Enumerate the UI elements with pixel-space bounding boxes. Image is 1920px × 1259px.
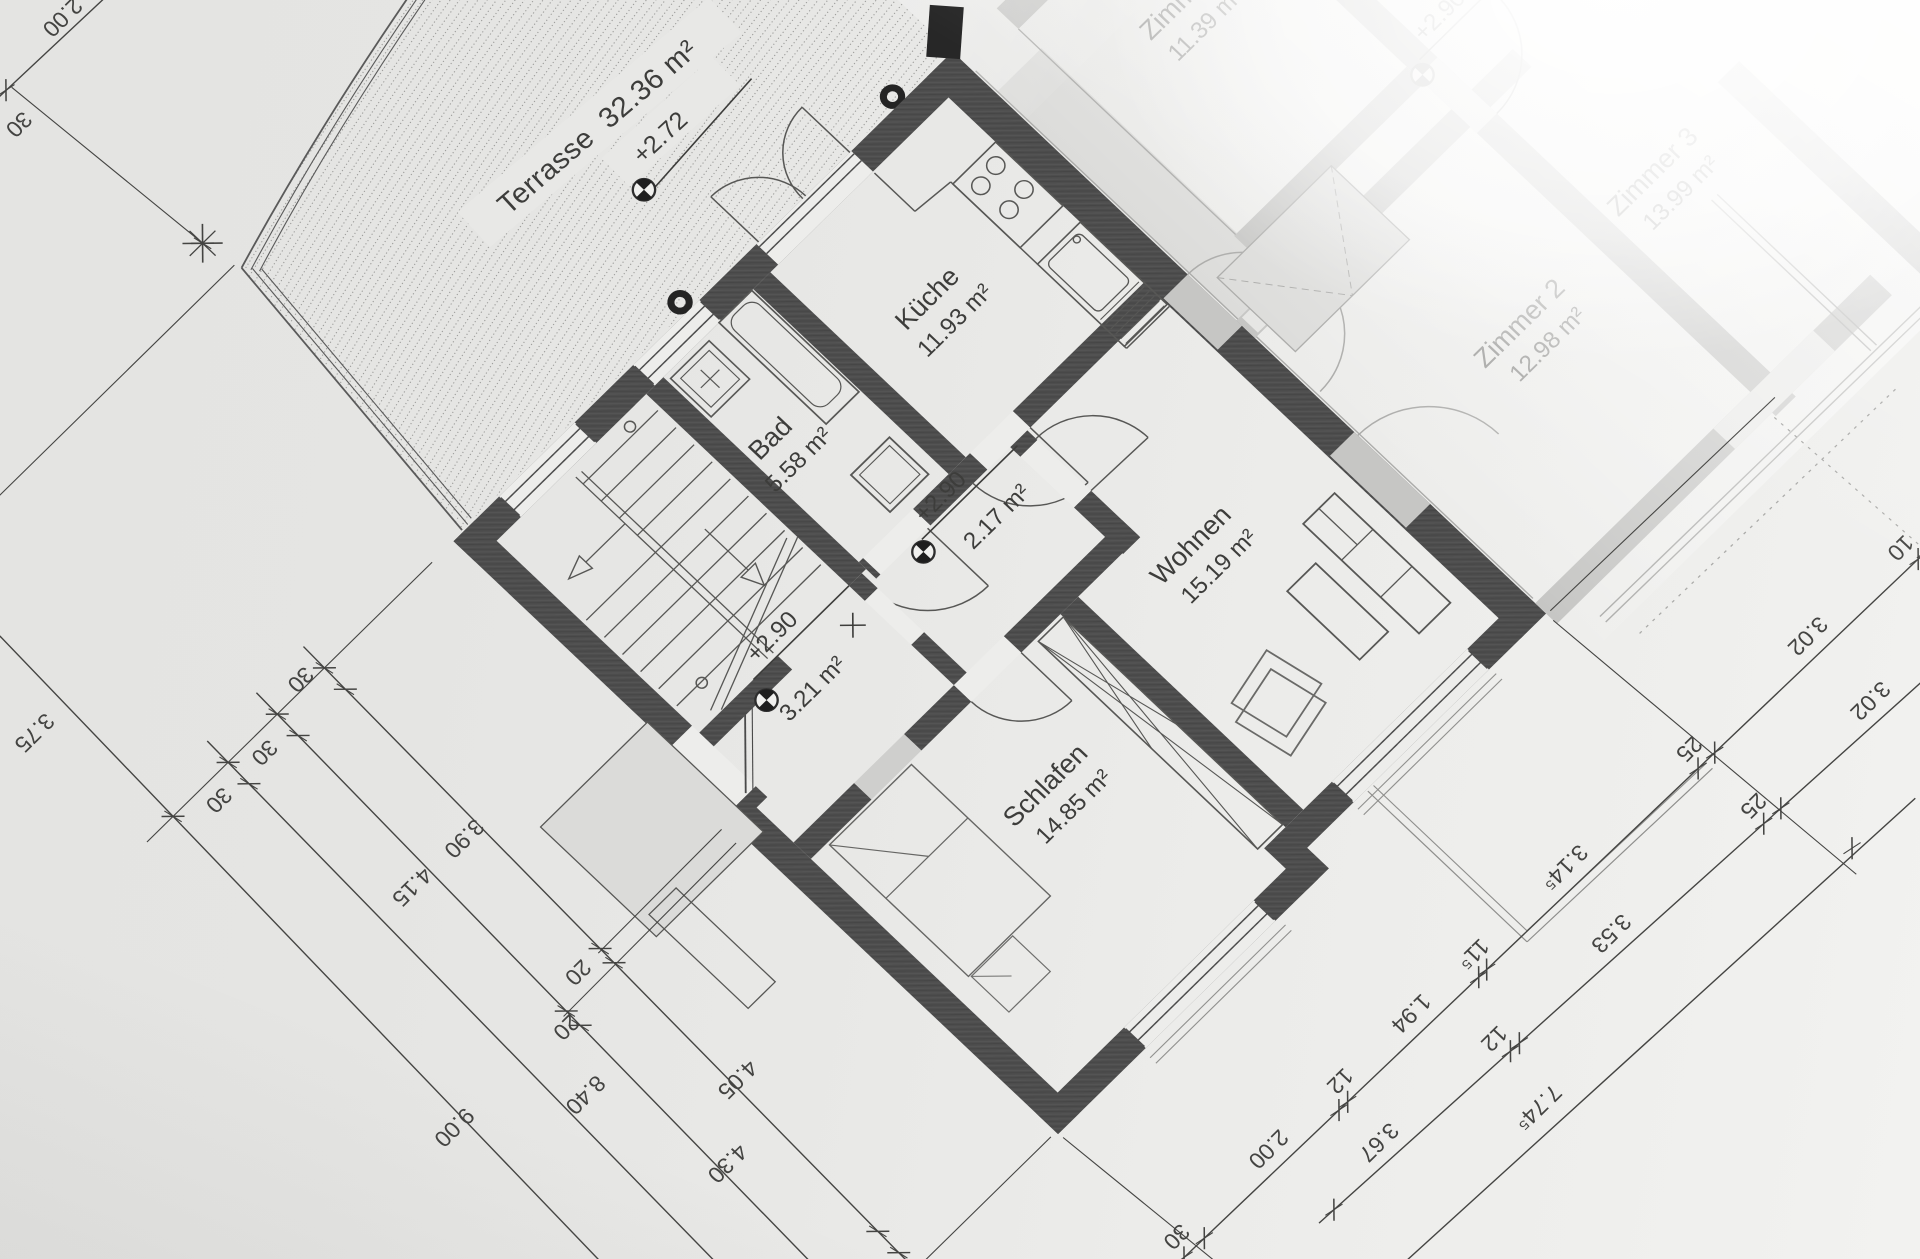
svg-text:3.90: 3.90: [439, 814, 490, 863]
svg-text:3.67: 3.67: [1354, 1118, 1405, 1167]
svg-text:9.00: 9.00: [429, 1103, 480, 1152]
svg-text:20: 20: [548, 1010, 585, 1046]
svg-text:30: 30: [201, 783, 238, 819]
svg-text:3.75: 3.75: [9, 708, 60, 757]
svg-text:20: 20: [560, 955, 597, 991]
svg-text:4.15: 4.15: [387, 863, 438, 912]
svg-text:8.40: 8.40: [560, 1071, 611, 1120]
svg-text:1.94: 1.94: [1386, 989, 1437, 1038]
svg-text:3.02: 3.02: [1783, 612, 1834, 661]
svg-text:25: 25: [1735, 788, 1772, 824]
svg-text:7.74⁵: 7.74⁵: [1510, 1080, 1568, 1136]
svg-text:30: 30: [246, 735, 283, 771]
svg-text:4.05: 4.05: [713, 1055, 764, 1104]
svg-text:2.17 m²: 2.17 m²: [958, 479, 1036, 554]
svg-text:12: 12: [1476, 1021, 1513, 1057]
svg-text:2.00: 2.00: [1243, 1125, 1294, 1174]
svg-text:10: 10: [1882, 530, 1919, 566]
svg-text:+2.90: +2.90: [741, 606, 804, 667]
svg-text:3.21 m²: 3.21 m²: [774, 651, 852, 726]
svg-text:12: 12: [1322, 1063, 1359, 1099]
svg-text:4.30: 4.30: [702, 1139, 753, 1188]
svg-text:30: 30: [1, 107, 38, 143]
svg-text:3.02: 3.02: [1845, 676, 1896, 725]
svg-text:3.53: 3.53: [1586, 909, 1637, 958]
svg-text:25: 25: [1671, 731, 1708, 767]
svg-text:30: 30: [1158, 1219, 1195, 1255]
